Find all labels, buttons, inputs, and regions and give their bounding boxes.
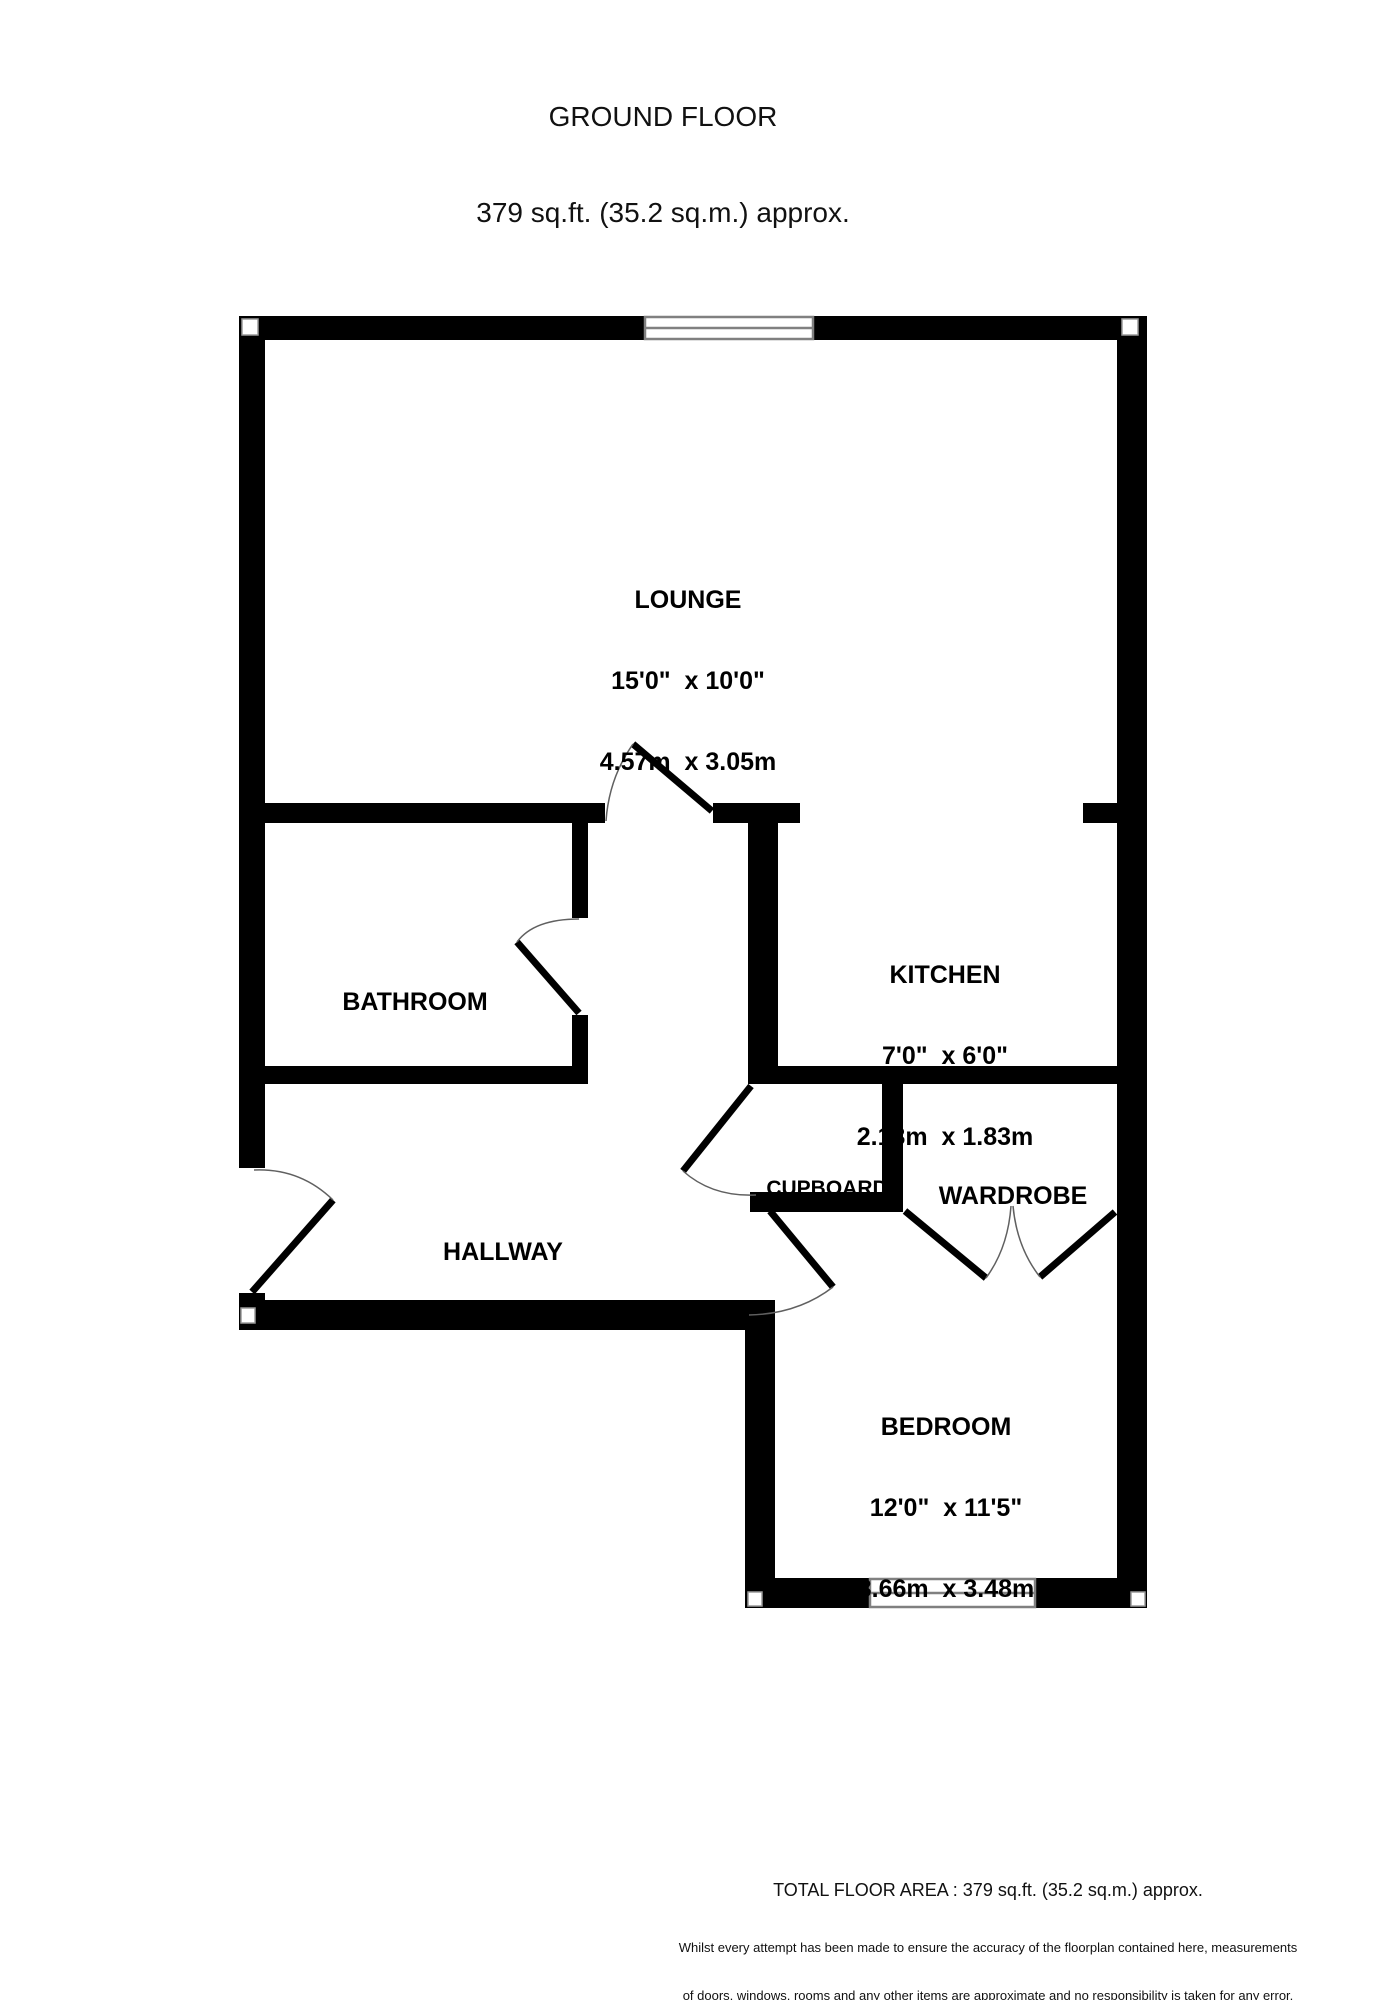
page-title-line1: GROUND FLOOR <box>476 101 850 133</box>
room-label-bathroom: BATHROOM <box>342 935 487 1070</box>
wall-kitchen-left <box>748 823 778 1066</box>
wall-top-right <box>813 316 1147 340</box>
wall-left <box>239 316 265 1168</box>
door-bathroom-leaf <box>517 942 579 1013</box>
room-label-wardrobe: WARDROBE <box>939 1129 1088 1264</box>
room-name: HALLWAY <box>443 1239 563 1266</box>
page-title: GROUND FLOOR 379 sq.ft. (35.2 sq.m.) app… <box>476 37 850 293</box>
page-title-line2: 379 sq.ft. (35.2 sq.m.) approx. <box>476 197 850 229</box>
wall-top-left <box>239 316 645 340</box>
door-cupboard-leaf <box>683 1086 751 1171</box>
room-label-bedroom: BEDROOM 12'0" x 11'5" 3.66m x 3.48m <box>858 1360 1035 1657</box>
wall-kitchen-top-stub <box>1083 803 1117 823</box>
room-name: CUPBOARD <box>766 1177 887 1200</box>
room-label-hallway: HALLWAY <box>443 1185 563 1320</box>
room-dims-metric: 4.57m x 3.05m <box>600 749 777 776</box>
corner-marker-bedroom-bottom-right <box>1131 1592 1145 1606</box>
room-dims-metric: 3.66m x 3.48m <box>858 1576 1035 1603</box>
disclaimer: Whilst every attempt has been made to en… <box>675 1908 1301 2000</box>
floorplan-page: GROUND FLOOR 379 sq.ft. (35.2 sq.m.) app… <box>0 0 1380 2000</box>
wall-bathroom-right-lower <box>572 1015 588 1066</box>
corner-marker-top-left <box>242 319 258 335</box>
window-top <box>645 317 813 339</box>
wall-right <box>1117 316 1147 1608</box>
corner-marker-top-right <box>1122 319 1138 335</box>
corner-marker-bedroom-bottom-left <box>748 1592 762 1606</box>
door-entrance <box>252 1170 333 1292</box>
room-name: BEDROOM <box>858 1414 1035 1441</box>
total-floor-area: TOTAL FLOOR AREA : 379 sq.ft. (35.2 sq.m… <box>773 1880 1203 1900</box>
room-name: LOUNGE <box>600 587 777 614</box>
room-dims-imperial: 12'0" x 11'5" <box>858 1495 1035 1522</box>
wall-bathroom-right-upper <box>572 823 588 918</box>
wall-bedroom-left <box>745 1300 775 1608</box>
room-dims-imperial: 7'0" x 6'0" <box>857 1043 1034 1070</box>
corner-marker-hallway-bottom-left <box>241 1308 255 1323</box>
room-name: BATHROOM <box>342 989 487 1016</box>
door-bathroom <box>517 919 579 1013</box>
room-label-cupboard: CUPBOARD <box>766 1131 887 1246</box>
floorplan-drawing <box>0 0 1380 2000</box>
disclaimer-line: Whilst every attempt has been made to en… <box>675 1940 1301 1956</box>
door-cupboard <box>683 1086 756 1195</box>
door-bathroom-arc <box>517 919 579 942</box>
wall-bedroom-bottom-left <box>745 1578 870 1608</box>
wall-lounge-bottom-left <box>239 803 605 823</box>
room-name: WARDROBE <box>939 1183 1088 1210</box>
door-entrance-leaf <box>252 1200 333 1292</box>
disclaimer-line: of doors, windows, rooms and any other i… <box>675 1988 1301 2000</box>
door-entrance-arc <box>254 1170 333 1200</box>
room-name: KITCHEN <box>857 962 1034 989</box>
door-cupboard-arc <box>683 1171 756 1195</box>
room-label-lounge: LOUNGE 15'0" x 10'0" 4.57m x 3.05m <box>600 533 777 830</box>
room-dims-imperial: 15'0" x 10'0" <box>600 668 777 695</box>
